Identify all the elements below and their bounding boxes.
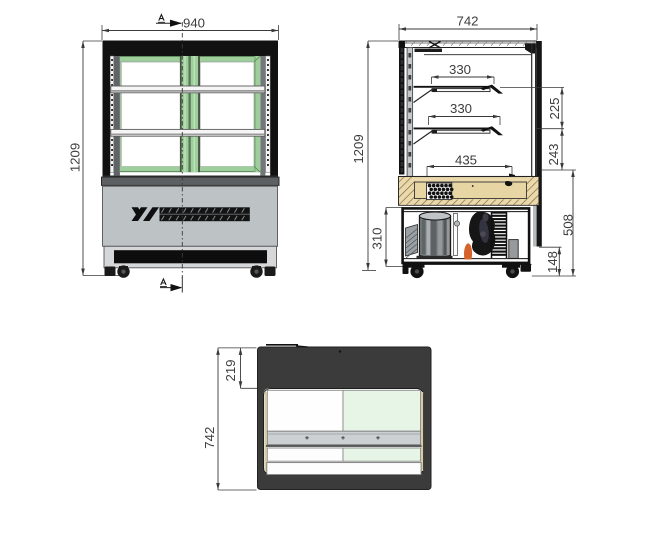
svg-text:330: 330 — [450, 101, 472, 116]
svg-text:1209: 1209 — [351, 134, 366, 163]
svg-text:219: 219 — [223, 359, 238, 381]
svg-text:742: 742 — [202, 427, 217, 449]
svg-text:508: 508 — [561, 214, 576, 236]
svg-text:330: 330 — [449, 62, 471, 77]
svg-text:1209: 1209 — [67, 143, 82, 172]
svg-text:742: 742 — [456, 14, 478, 29]
svg-text:310: 310 — [370, 227, 385, 249]
svg-text:243: 243 — [546, 143, 561, 165]
svg-text:940: 940 — [183, 16, 205, 31]
svg-text:225: 225 — [547, 97, 562, 119]
svg-text:435: 435 — [455, 153, 477, 168]
svg-text:148: 148 — [545, 251, 560, 273]
